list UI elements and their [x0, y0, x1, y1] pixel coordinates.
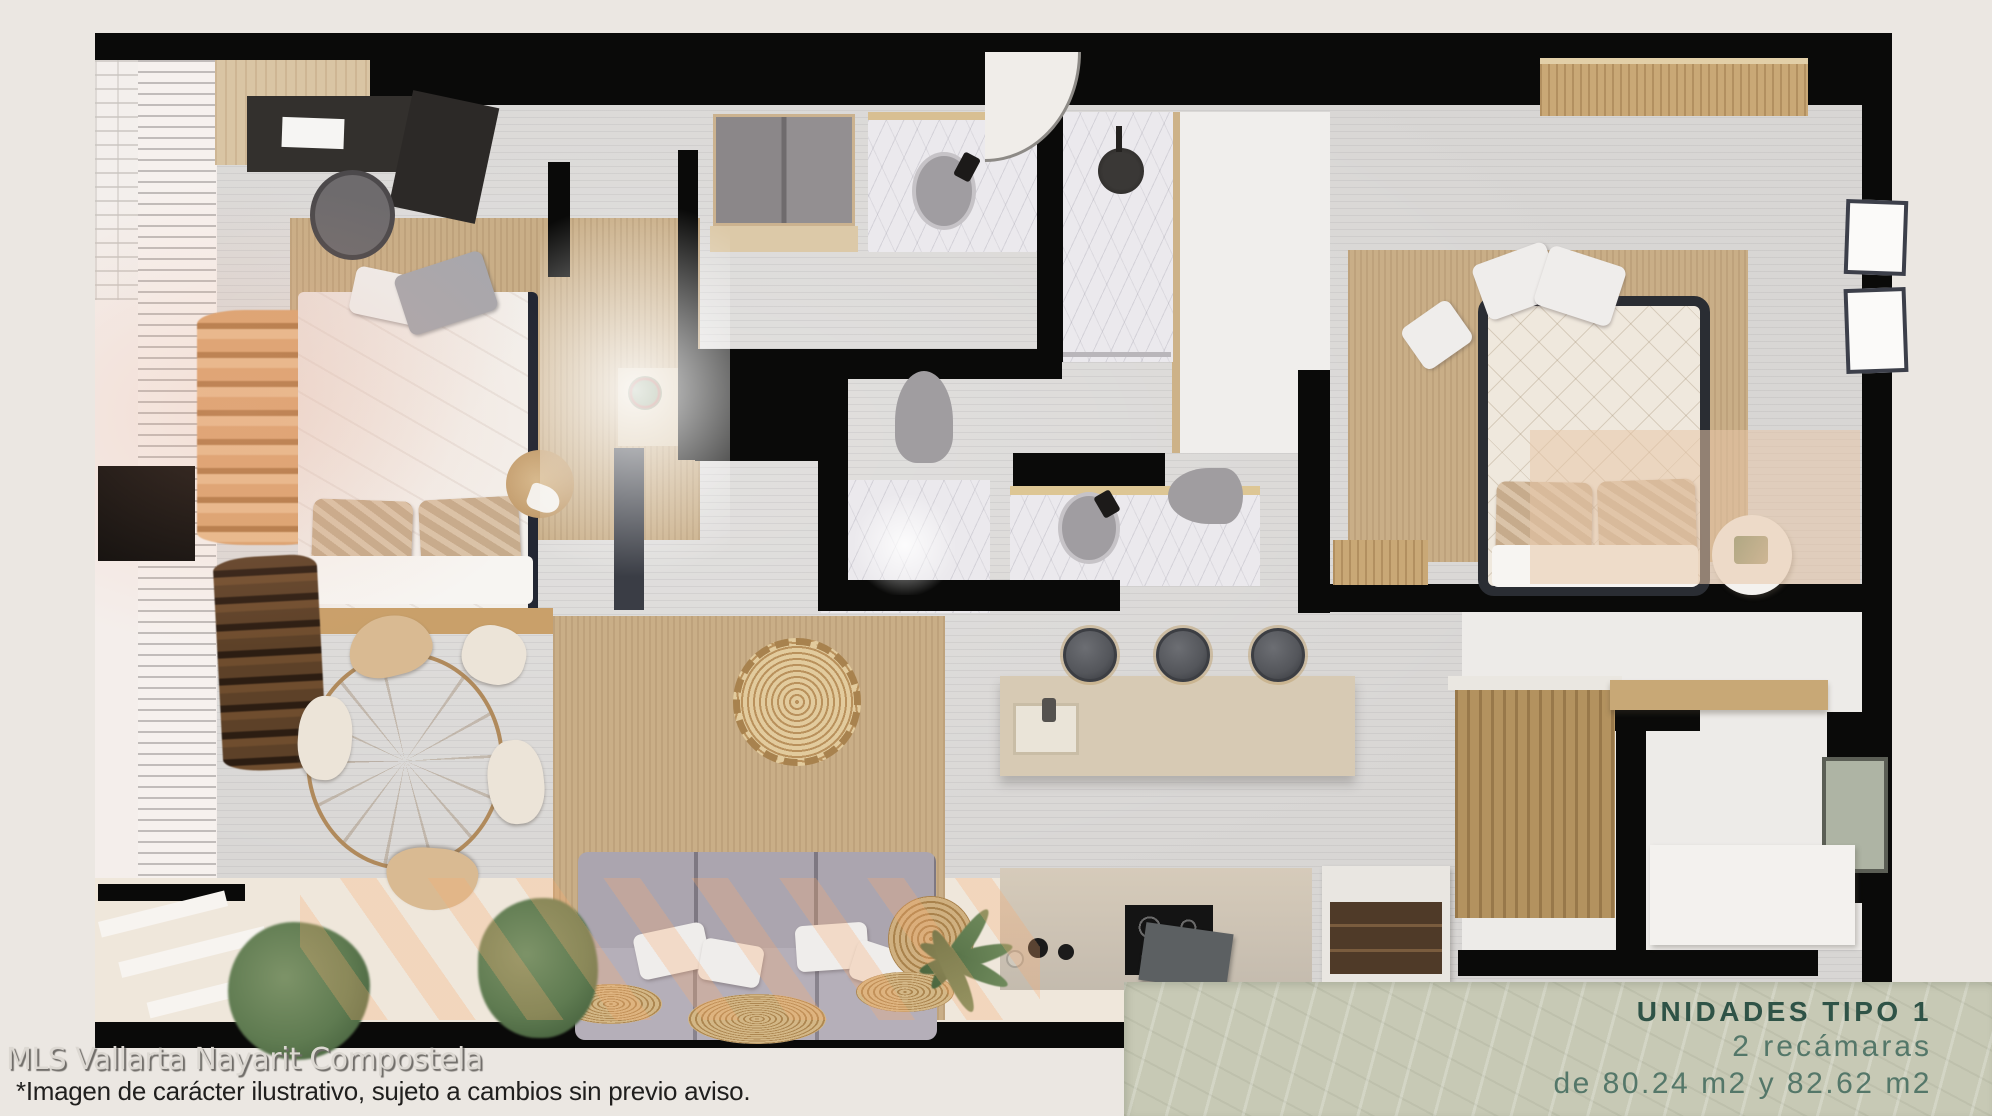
bar-stool — [1063, 628, 1117, 682]
headboard-shelf — [1540, 58, 1808, 116]
window — [1844, 287, 1909, 374]
watermark-text: MLS Vallarta Nayarit Compostela — [6, 1042, 483, 1077]
sofa-back — [578, 852, 936, 948]
nightstand — [1333, 540, 1428, 585]
jute-mat — [688, 994, 826, 1044]
bar-stool — [1156, 628, 1210, 682]
shower-head-icon — [1098, 148, 1144, 194]
floorplan-render — [0, 0, 1992, 1116]
wall-shower1-side — [1037, 112, 1063, 362]
closet-door — [614, 448, 644, 610]
panel-subtitle: 2 recámaras — [1124, 1028, 1932, 1066]
wardrobe-ledge — [710, 226, 858, 252]
cart-drawers — [1330, 902, 1442, 974]
glass-jar — [1006, 950, 1024, 968]
bowl — [1028, 938, 1048, 958]
nightstand-plant — [628, 376, 662, 410]
side-table-decor — [1734, 536, 1768, 564]
page: MLS Vallarta Nayarit Compostela *Imagen … — [0, 0, 1992, 1116]
wall-hall-vertical — [818, 379, 848, 581]
window — [1844, 199, 1909, 276]
wall-kitchen-top — [818, 580, 1120, 611]
shower-arm — [1116, 126, 1122, 152]
desk-paper — [281, 117, 344, 149]
toilet — [895, 371, 953, 463]
wardrobe — [713, 114, 855, 226]
wall-left-stub — [98, 466, 195, 561]
wall-bedroom2-left — [1298, 370, 1330, 613]
desk-chair — [310, 170, 395, 260]
bar-stool — [1251, 628, 1305, 682]
wall-bath2-top — [1013, 453, 1165, 486]
wall-bedroom1-stub — [548, 162, 570, 277]
wood-cabinet — [1455, 686, 1615, 918]
utility-bench — [1650, 845, 1855, 945]
wood-cabinet-top — [1448, 676, 1622, 690]
bed-sheet — [1492, 545, 1698, 587]
shower-glass — [1063, 352, 1171, 357]
bowl — [1058, 944, 1074, 960]
wall-utility-v — [1616, 705, 1646, 965]
wood-shelf — [1610, 680, 1828, 710]
wall-core-block — [695, 349, 820, 461]
wall-utility-bottom — [1458, 950, 1818, 976]
disclaimer-text: *Imagen de carácter ilustrativo, sujeto … — [16, 1076, 750, 1107]
island-faucet — [1042, 698, 1056, 722]
brick-wall — [95, 60, 141, 300]
toilet — [1168, 468, 1243, 524]
potted-plant — [478, 898, 598, 1038]
panel-title: UNIDADES TIPO 1 — [1124, 996, 1932, 1028]
bed-sheet — [305, 556, 533, 604]
info-panel: UNIDADES TIPO 1 2 recámaras de 80.24 m2 … — [1124, 982, 1992, 1116]
panel-sizes: de 80.24 m2 y 82.62 m2 — [1124, 1066, 1932, 1102]
wall-hall-horizontal — [820, 349, 1062, 379]
rattan-wall-decor — [733, 638, 861, 766]
